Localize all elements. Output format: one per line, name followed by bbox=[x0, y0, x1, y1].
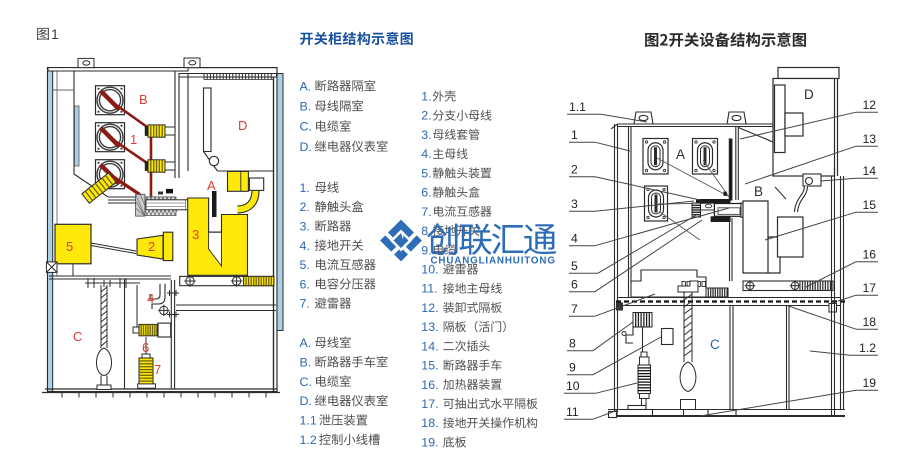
svg-text:18: 18 bbox=[862, 315, 876, 329]
svg-text:B.: B. bbox=[300, 355, 312, 369]
svg-text:7.: 7. bbox=[421, 205, 431, 219]
svg-text:B: B bbox=[754, 184, 763, 199]
svg-text:11: 11 bbox=[566, 405, 579, 419]
svg-text:6: 6 bbox=[142, 340, 149, 355]
svg-text:2: 2 bbox=[148, 239, 155, 254]
svg-text:2: 2 bbox=[571, 163, 578, 177]
svg-text:C.: C. bbox=[300, 120, 312, 134]
svg-text:10: 10 bbox=[566, 379, 580, 393]
svg-text:B.: B. bbox=[300, 100, 312, 114]
svg-text:1.2: 1.2 bbox=[859, 341, 876, 355]
svg-text:2.: 2. bbox=[300, 200, 310, 214]
svg-text:12: 12 bbox=[862, 98, 876, 112]
svg-text:5: 5 bbox=[571, 259, 578, 273]
svg-text:3: 3 bbox=[192, 227, 199, 242]
svg-text:A.: A. bbox=[300, 79, 312, 93]
svg-text:CHUANGLIANHUITONG: CHUANGLIANHUITONG bbox=[431, 256, 556, 267]
svg-text:5: 5 bbox=[66, 239, 73, 254]
svg-text:7: 7 bbox=[154, 362, 161, 377]
svg-text:1.: 1. bbox=[421, 90, 431, 104]
svg-text:15.: 15. bbox=[421, 359, 438, 373]
svg-text:6: 6 bbox=[571, 278, 578, 292]
svg-text:15: 15 bbox=[862, 198, 876, 212]
svg-text:6.: 6. bbox=[300, 277, 310, 291]
svg-text:3.: 3. bbox=[421, 128, 431, 142]
svg-text:A.: A. bbox=[300, 336, 312, 350]
svg-text:1.: 1. bbox=[300, 181, 310, 195]
svg-text:18.: 18. bbox=[421, 416, 438, 430]
svg-text:7: 7 bbox=[571, 302, 578, 316]
svg-text:8: 8 bbox=[569, 337, 576, 351]
svg-text:A: A bbox=[676, 147, 685, 162]
svg-text:1: 1 bbox=[571, 128, 578, 142]
svg-text:D.: D. bbox=[300, 394, 312, 408]
svg-text:13: 13 bbox=[862, 132, 876, 146]
svg-text:1.2: 1.2 bbox=[300, 433, 317, 447]
svg-text:A: A bbox=[207, 178, 216, 193]
svg-text:D.: D. bbox=[300, 140, 312, 154]
svg-text:1.1: 1.1 bbox=[569, 100, 586, 114]
svg-text:D: D bbox=[238, 118, 247, 133]
svg-text:9: 9 bbox=[569, 361, 576, 375]
svg-text:C.: C. bbox=[300, 375, 312, 389]
svg-text:2.: 2. bbox=[421, 109, 431, 123]
svg-text:13.: 13. bbox=[421, 320, 438, 334]
svg-text:4: 4 bbox=[147, 291, 154, 306]
svg-text:3: 3 bbox=[571, 197, 578, 211]
svg-text:17: 17 bbox=[862, 281, 876, 295]
svg-text:19.: 19. bbox=[421, 436, 438, 450]
svg-text:C: C bbox=[710, 337, 720, 352]
svg-text:14.: 14. bbox=[421, 339, 438, 353]
svg-text:C: C bbox=[73, 329, 82, 344]
svg-text:D: D bbox=[804, 87, 814, 102]
svg-text:5.: 5. bbox=[421, 166, 431, 180]
svg-text:4: 4 bbox=[571, 232, 578, 246]
svg-text:7.: 7. bbox=[300, 297, 310, 311]
svg-text:4.: 4. bbox=[421, 147, 431, 161]
svg-text:1: 1 bbox=[130, 132, 137, 147]
svg-text:3.: 3. bbox=[300, 220, 310, 234]
svg-text:B: B bbox=[139, 92, 148, 107]
svg-text:16.: 16. bbox=[421, 378, 438, 392]
svg-text:17.: 17. bbox=[421, 397, 438, 411]
svg-text:4.: 4. bbox=[300, 239, 310, 253]
svg-text:14: 14 bbox=[862, 164, 876, 178]
svg-text:19: 19 bbox=[862, 376, 876, 390]
svg-text:1.1: 1.1 bbox=[300, 414, 317, 428]
svg-text:12.: 12. bbox=[421, 301, 438, 315]
svg-text:1: 1 bbox=[51, 26, 59, 42]
svg-text:16: 16 bbox=[862, 248, 876, 262]
svg-text:6.: 6. bbox=[421, 186, 431, 200]
svg-text:11.: 11. bbox=[421, 282, 437, 296]
svg-text:5.: 5. bbox=[300, 258, 310, 272]
